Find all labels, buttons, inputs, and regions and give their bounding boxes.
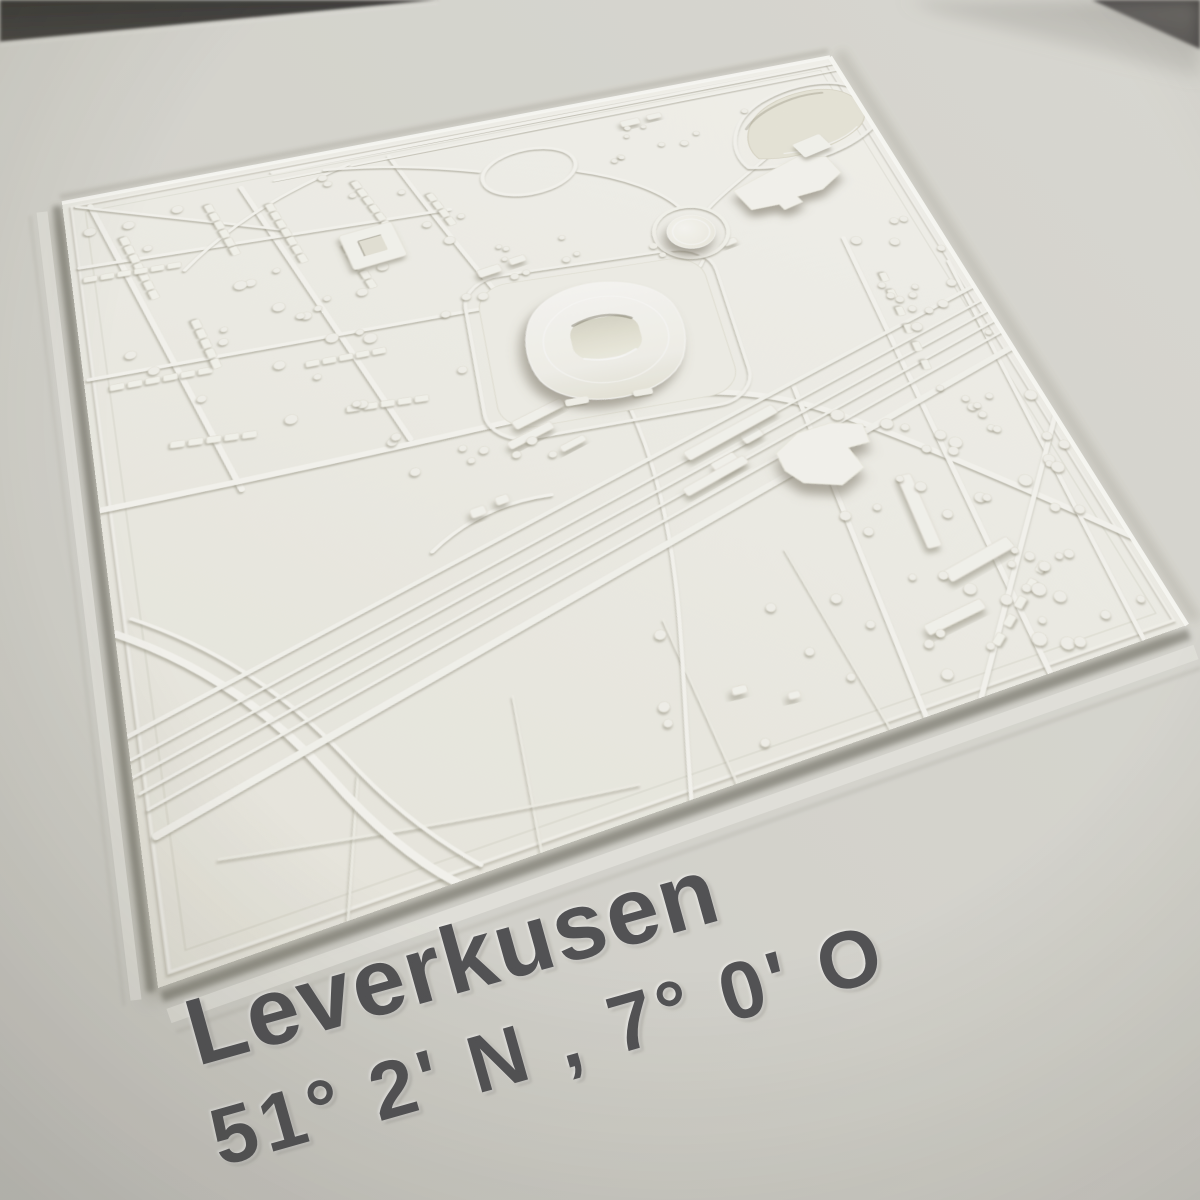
photo-overlay-layer <box>0 0 1200 1200</box>
paper-noise <box>0 0 1200 1200</box>
photo-canvas: Leverkusen 51° 2' N , 7° 0' O <box>0 0 1200 1200</box>
